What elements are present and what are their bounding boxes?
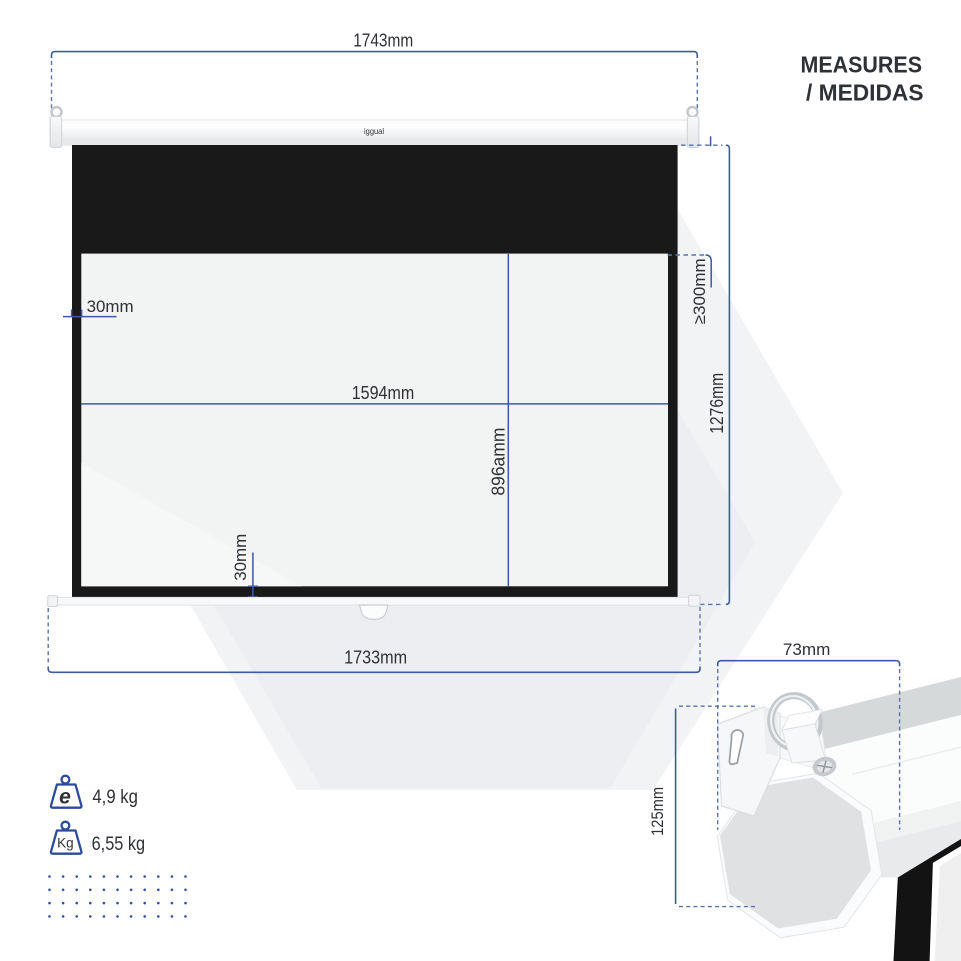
svg-text:1594mm: 1594mm — [352, 383, 415, 403]
svg-text:1733mm: 1733mm — [344, 648, 407, 668]
svg-text:30mm: 30mm — [232, 534, 250, 581]
svg-text:6,55 kg: 6,55 kg — [92, 834, 146, 855]
svg-text:≥300mm: ≥300mm — [690, 258, 709, 324]
svg-text:/ MEDIDAS: / MEDIDAS — [806, 80, 924, 106]
svg-text:1276mm: 1276mm — [707, 373, 727, 434]
svg-text:iggual: iggual — [364, 126, 384, 136]
svg-text:Kg: Kg — [57, 836, 74, 851]
svg-text:125mm: 125mm — [648, 787, 667, 836]
svg-text:MEASURES: MEASURES — [801, 52, 923, 78]
svg-text:1743mm: 1743mm — [353, 31, 413, 51]
svg-text:4,9 kg: 4,9 kg — [92, 787, 137, 808]
svg-text:e: e — [59, 786, 71, 809]
svg-text:896amm: 896amm — [489, 428, 509, 496]
svg-text:30mm: 30mm — [87, 298, 134, 316]
svg-text:73mm: 73mm — [783, 640, 831, 659]
